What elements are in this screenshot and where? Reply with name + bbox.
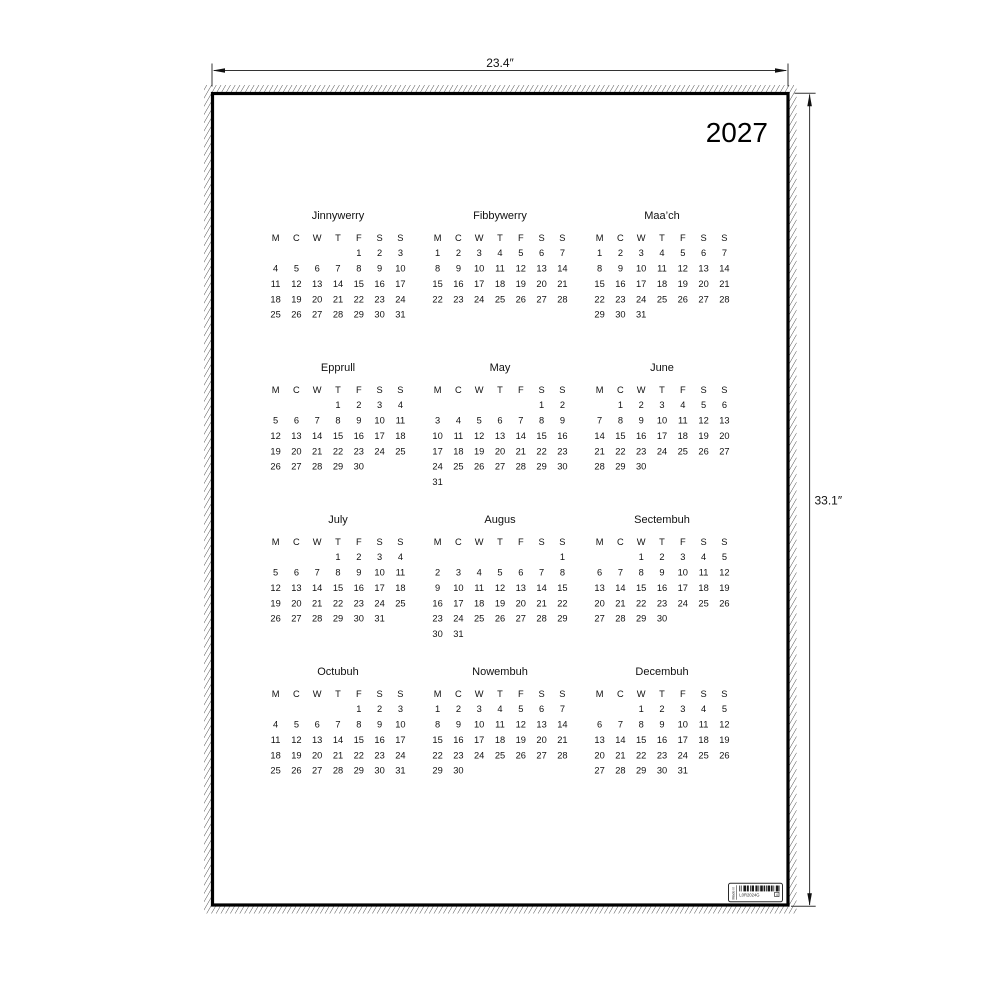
- svg-text:24: 24: [678, 598, 688, 608]
- svg-text:22: 22: [354, 750, 364, 760]
- svg-text:4: 4: [398, 552, 403, 562]
- svg-text:8: 8: [356, 720, 361, 730]
- svg-text:T: T: [335, 537, 341, 547]
- svg-text:4: 4: [477, 568, 482, 578]
- svg-text:16: 16: [615, 279, 625, 289]
- svg-text:2: 2: [356, 400, 361, 410]
- svg-text:22: 22: [536, 446, 546, 456]
- svg-text:Maa’ch: Maa’ch: [644, 210, 679, 222]
- svg-text:30: 30: [636, 462, 646, 472]
- svg-text:6: 6: [518, 568, 523, 578]
- svg-text:27: 27: [698, 294, 708, 304]
- svg-text:17: 17: [657, 431, 667, 441]
- svg-text:S: S: [700, 233, 706, 243]
- svg-text:28: 28: [312, 462, 322, 472]
- svg-text:15: 15: [333, 583, 343, 593]
- svg-text:S: S: [397, 233, 403, 243]
- svg-text:31: 31: [395, 310, 405, 320]
- svg-text:18: 18: [395, 583, 405, 593]
- svg-text:15: 15: [636, 735, 646, 745]
- svg-text:M: M: [434, 689, 442, 699]
- svg-text:Sectembuh: Sectembuh: [634, 514, 690, 526]
- svg-text:22: 22: [557, 598, 567, 608]
- svg-text:3: 3: [659, 400, 664, 410]
- svg-text:15: 15: [615, 431, 625, 441]
- svg-text:2: 2: [618, 248, 623, 258]
- svg-text:14: 14: [594, 431, 604, 441]
- svg-text:27: 27: [495, 462, 505, 472]
- svg-text:30: 30: [557, 462, 567, 472]
- svg-text:T: T: [335, 233, 341, 243]
- svg-text:12: 12: [698, 416, 708, 426]
- svg-text:S: S: [559, 689, 565, 699]
- svg-text:19: 19: [719, 735, 729, 745]
- svg-text:6: 6: [294, 568, 299, 578]
- svg-text:F: F: [680, 385, 686, 395]
- svg-text:10: 10: [374, 568, 384, 578]
- svg-text:F: F: [680, 233, 686, 243]
- svg-text:16: 16: [657, 583, 667, 593]
- svg-text:T: T: [659, 689, 665, 699]
- svg-text:16: 16: [453, 735, 463, 745]
- svg-text:14: 14: [312, 431, 322, 441]
- svg-text:29: 29: [354, 310, 364, 320]
- svg-text:21: 21: [719, 279, 729, 289]
- svg-text:7: 7: [618, 568, 623, 578]
- svg-text:C: C: [293, 689, 300, 699]
- svg-text:26: 26: [516, 750, 526, 760]
- svg-text:13: 13: [312, 735, 322, 745]
- svg-text:Augus: Augus: [484, 514, 516, 526]
- svg-text:2: 2: [377, 704, 382, 714]
- svg-text:21: 21: [615, 750, 625, 760]
- svg-text:20: 20: [312, 294, 322, 304]
- svg-text:S: S: [397, 689, 403, 699]
- svg-text:23: 23: [636, 446, 646, 456]
- svg-text:T: T: [497, 537, 503, 547]
- svg-text:9: 9: [435, 583, 440, 593]
- svg-text:27: 27: [516, 614, 526, 624]
- svg-text:14: 14: [615, 583, 625, 593]
- svg-text:C: C: [455, 385, 462, 395]
- svg-text:1: 1: [356, 248, 361, 258]
- svg-text:M: M: [434, 233, 442, 243]
- svg-text:23: 23: [432, 614, 442, 624]
- svg-text:22: 22: [636, 750, 646, 760]
- svg-text:W: W: [475, 689, 484, 699]
- svg-text:5: 5: [294, 720, 299, 730]
- svg-text:6: 6: [597, 568, 602, 578]
- svg-text:17: 17: [474, 279, 484, 289]
- svg-text:3: 3: [639, 248, 644, 258]
- svg-text:31: 31: [374, 614, 384, 624]
- svg-text:5: 5: [701, 400, 706, 410]
- svg-text:12: 12: [516, 264, 526, 274]
- svg-text:23.4″: 23.4″: [486, 56, 514, 70]
- svg-text:14: 14: [516, 431, 526, 441]
- svg-text:25: 25: [698, 750, 708, 760]
- svg-text:F: F: [356, 537, 362, 547]
- svg-text:7: 7: [518, 416, 523, 426]
- svg-text:19: 19: [516, 279, 526, 289]
- svg-text:S: S: [559, 537, 565, 547]
- svg-text:19: 19: [516, 735, 526, 745]
- svg-text:24: 24: [474, 294, 484, 304]
- svg-text:S: S: [376, 385, 382, 395]
- svg-text:18: 18: [270, 294, 280, 304]
- svg-text:25: 25: [270, 766, 280, 776]
- svg-text:8: 8: [435, 264, 440, 274]
- svg-text:5: 5: [273, 568, 278, 578]
- svg-text:28: 28: [615, 614, 625, 624]
- svg-text:10: 10: [453, 583, 463, 593]
- svg-text:9: 9: [456, 720, 461, 730]
- svg-text:16: 16: [432, 598, 442, 608]
- svg-text:M: M: [596, 537, 604, 547]
- svg-text:Nowembuh: Nowembuh: [472, 666, 528, 678]
- svg-text:9: 9: [639, 416, 644, 426]
- svg-text:1: 1: [639, 552, 644, 562]
- svg-text:S: S: [721, 537, 727, 547]
- svg-text:28: 28: [516, 462, 526, 472]
- svg-text:M: M: [272, 233, 280, 243]
- svg-text:4: 4: [497, 704, 502, 714]
- svg-text:29: 29: [432, 766, 442, 776]
- svg-text:S: S: [538, 233, 544, 243]
- svg-text:16: 16: [557, 431, 567, 441]
- svg-text:19: 19: [474, 446, 484, 456]
- svg-text:24: 24: [474, 750, 484, 760]
- svg-text:M: M: [272, 689, 280, 699]
- svg-text:29: 29: [615, 462, 625, 472]
- svg-text:23: 23: [374, 294, 384, 304]
- svg-text:W: W: [637, 385, 646, 395]
- svg-text:26: 26: [495, 614, 505, 624]
- svg-text:F: F: [356, 689, 362, 699]
- svg-text:20: 20: [594, 750, 604, 760]
- svg-text:3: 3: [477, 248, 482, 258]
- svg-text:24: 24: [657, 446, 667, 456]
- svg-text:C: C: [617, 233, 624, 243]
- svg-text:7: 7: [597, 416, 602, 426]
- svg-text:13: 13: [719, 416, 729, 426]
- svg-text:5: 5: [518, 704, 523, 714]
- svg-text:17: 17: [636, 279, 646, 289]
- svg-text:25: 25: [495, 294, 505, 304]
- svg-text:9: 9: [560, 416, 565, 426]
- svg-text:27: 27: [291, 462, 301, 472]
- svg-text:33.1″: 33.1″: [815, 494, 843, 508]
- svg-text:1: 1: [639, 704, 644, 714]
- svg-text:3: 3: [456, 568, 461, 578]
- svg-text:W: W: [313, 385, 322, 395]
- svg-text:28: 28: [594, 462, 604, 472]
- svg-text:S: S: [559, 385, 565, 395]
- svg-text:14: 14: [536, 583, 546, 593]
- svg-text:1: 1: [618, 400, 623, 410]
- svg-text:6: 6: [315, 264, 320, 274]
- svg-text:23: 23: [657, 750, 667, 760]
- svg-text:25: 25: [474, 614, 484, 624]
- svg-text:15: 15: [354, 735, 364, 745]
- svg-text:W: W: [313, 537, 322, 547]
- svg-text:20: 20: [719, 431, 729, 441]
- svg-text:6: 6: [701, 248, 706, 258]
- svg-text:31: 31: [636, 310, 646, 320]
- svg-text:17: 17: [432, 446, 442, 456]
- svg-text:25: 25: [270, 310, 280, 320]
- svg-text:24: 24: [636, 294, 646, 304]
- svg-text:Jinnywerry: Jinnywerry: [312, 210, 365, 222]
- svg-text:16: 16: [374, 279, 384, 289]
- svg-text:7: 7: [722, 248, 727, 258]
- svg-text:Made in: Made in: [731, 887, 735, 900]
- svg-text:2027: 2027: [706, 117, 768, 148]
- svg-text:T: T: [659, 385, 665, 395]
- svg-text:11: 11: [699, 720, 709, 730]
- svg-text:June: June: [650, 362, 674, 374]
- svg-text:24: 24: [453, 614, 463, 624]
- svg-text:C: C: [455, 537, 462, 547]
- svg-text:T: T: [335, 689, 341, 699]
- svg-text:21: 21: [516, 446, 526, 456]
- svg-text:20: 20: [516, 598, 526, 608]
- svg-text:S: S: [538, 385, 544, 395]
- svg-text:10: 10: [395, 264, 405, 274]
- svg-text:1: 1: [597, 248, 602, 258]
- svg-text:8: 8: [335, 416, 340, 426]
- svg-text:23: 23: [557, 446, 567, 456]
- svg-text:F: F: [518, 233, 524, 243]
- svg-text:25: 25: [678, 446, 688, 456]
- svg-text:1: 1: [335, 552, 340, 562]
- svg-text:16: 16: [354, 583, 364, 593]
- svg-text:20: 20: [291, 598, 301, 608]
- svg-text:T: T: [659, 537, 665, 547]
- svg-text:25: 25: [657, 294, 667, 304]
- svg-text:W: W: [313, 689, 322, 699]
- svg-text:W: W: [637, 233, 646, 243]
- svg-text:6: 6: [539, 704, 544, 714]
- svg-text:15: 15: [594, 279, 604, 289]
- svg-text:28: 28: [557, 750, 567, 760]
- svg-text:1: 1: [435, 248, 440, 258]
- svg-text:9: 9: [356, 416, 361, 426]
- svg-text:May: May: [490, 362, 511, 374]
- svg-text:23: 23: [453, 750, 463, 760]
- svg-text:26: 26: [719, 598, 729, 608]
- svg-text:27: 27: [594, 614, 604, 624]
- svg-text:24: 24: [432, 462, 442, 472]
- svg-text:29: 29: [636, 614, 646, 624]
- svg-text:8: 8: [356, 264, 361, 274]
- svg-text:19: 19: [270, 598, 280, 608]
- svg-text:18: 18: [678, 431, 688, 441]
- svg-text:8: 8: [539, 416, 544, 426]
- svg-text:M: M: [434, 537, 442, 547]
- svg-text:13: 13: [495, 431, 505, 441]
- svg-text:12: 12: [270, 431, 280, 441]
- svg-text:1: 1: [356, 704, 361, 714]
- svg-text:22: 22: [333, 598, 343, 608]
- svg-text:C: C: [617, 385, 624, 395]
- svg-text:19: 19: [291, 750, 301, 760]
- svg-text:23: 23: [453, 294, 463, 304]
- svg-text:17: 17: [374, 431, 384, 441]
- svg-text:2: 2: [560, 400, 565, 410]
- svg-text:22: 22: [333, 446, 343, 456]
- svg-text:5: 5: [518, 248, 523, 258]
- svg-text:21: 21: [557, 735, 567, 745]
- svg-text:3: 3: [398, 704, 403, 714]
- svg-text:17: 17: [678, 735, 688, 745]
- svg-text:F: F: [518, 385, 524, 395]
- svg-text:28: 28: [557, 294, 567, 304]
- svg-text:18: 18: [698, 735, 708, 745]
- svg-text:17: 17: [395, 735, 405, 745]
- svg-text:6: 6: [597, 720, 602, 730]
- svg-text:1: 1: [560, 552, 565, 562]
- svg-text:F: F: [680, 689, 686, 699]
- svg-text:W: W: [475, 537, 484, 547]
- svg-text:4: 4: [497, 248, 502, 258]
- svg-text:21: 21: [312, 446, 322, 456]
- svg-text:3: 3: [680, 704, 685, 714]
- svg-text:13: 13: [291, 431, 301, 441]
- svg-text:29: 29: [536, 462, 546, 472]
- svg-text:30: 30: [453, 766, 463, 776]
- svg-text:M: M: [434, 385, 442, 395]
- svg-text:11: 11: [474, 583, 484, 593]
- svg-text:21: 21: [333, 750, 343, 760]
- svg-text:4: 4: [680, 400, 685, 410]
- svg-text:21: 21: [333, 294, 343, 304]
- svg-text:28: 28: [536, 614, 546, 624]
- svg-text:14: 14: [615, 735, 625, 745]
- svg-text:2: 2: [456, 248, 461, 258]
- svg-text:29: 29: [557, 614, 567, 624]
- svg-text:19: 19: [495, 598, 505, 608]
- svg-text:25: 25: [698, 598, 708, 608]
- svg-text:M: M: [596, 233, 604, 243]
- svg-text:F: F: [680, 537, 686, 547]
- svg-text:19: 19: [698, 431, 708, 441]
- svg-text:26: 26: [719, 750, 729, 760]
- svg-text:T: T: [659, 233, 665, 243]
- svg-text:W: W: [637, 537, 646, 547]
- svg-text:23: 23: [657, 598, 667, 608]
- svg-text:July: July: [328, 514, 348, 526]
- svg-text:22: 22: [615, 446, 625, 456]
- svg-text:14: 14: [557, 264, 567, 274]
- svg-text:11: 11: [495, 720, 505, 730]
- svg-text:30: 30: [374, 310, 384, 320]
- svg-text:23: 23: [615, 294, 625, 304]
- svg-text:11: 11: [657, 264, 667, 274]
- svg-text:S: S: [376, 689, 382, 699]
- svg-text:5: 5: [722, 552, 727, 562]
- svg-text:7: 7: [315, 416, 320, 426]
- svg-text:S: S: [700, 385, 706, 395]
- svg-text:30: 30: [432, 629, 442, 639]
- svg-text:8: 8: [639, 568, 644, 578]
- svg-text:30: 30: [657, 766, 667, 776]
- svg-text:29: 29: [636, 766, 646, 776]
- svg-text:22: 22: [636, 598, 646, 608]
- svg-text:30: 30: [354, 462, 364, 472]
- svg-text:27: 27: [536, 294, 546, 304]
- svg-text:T: T: [497, 233, 503, 243]
- svg-text:13: 13: [536, 264, 546, 274]
- svg-text:22: 22: [432, 750, 442, 760]
- svg-text:C: C: [617, 689, 624, 699]
- svg-text:F: F: [518, 689, 524, 699]
- svg-text:18: 18: [395, 431, 405, 441]
- svg-text:F: F: [356, 385, 362, 395]
- svg-text:S: S: [721, 385, 727, 395]
- svg-text:28: 28: [719, 294, 729, 304]
- svg-text:17: 17: [453, 598, 463, 608]
- svg-text:21: 21: [312, 598, 322, 608]
- svg-text:10: 10: [678, 568, 688, 578]
- svg-text:3: 3: [435, 416, 440, 426]
- svg-text:5: 5: [477, 416, 482, 426]
- svg-text:9: 9: [618, 264, 623, 274]
- svg-text:15: 15: [432, 279, 442, 289]
- svg-text:8: 8: [618, 416, 623, 426]
- svg-text:24: 24: [395, 750, 405, 760]
- svg-text:2: 2: [659, 552, 664, 562]
- svg-text:S: S: [538, 537, 544, 547]
- svg-text:11: 11: [271, 735, 281, 745]
- svg-text:26: 26: [698, 446, 708, 456]
- svg-text:30: 30: [657, 614, 667, 624]
- svg-text:C: C: [293, 385, 300, 395]
- svg-text:19: 19: [270, 446, 280, 456]
- svg-text:4: 4: [776, 893, 778, 897]
- svg-text:20: 20: [698, 279, 708, 289]
- svg-text:S: S: [538, 689, 544, 699]
- svg-text:11: 11: [454, 431, 464, 441]
- svg-text:W: W: [475, 233, 484, 243]
- svg-text:C: C: [617, 537, 624, 547]
- svg-text:F: F: [518, 537, 524, 547]
- svg-text:6: 6: [294, 416, 299, 426]
- svg-text:15: 15: [333, 431, 343, 441]
- svg-text:W: W: [637, 689, 646, 699]
- svg-text:S: S: [376, 233, 382, 243]
- svg-text:25: 25: [453, 462, 463, 472]
- svg-text:19: 19: [719, 583, 729, 593]
- svg-text:30: 30: [374, 766, 384, 776]
- svg-text:20: 20: [594, 598, 604, 608]
- svg-text:M: M: [272, 537, 280, 547]
- svg-text:4: 4: [273, 720, 278, 730]
- svg-text:11: 11: [678, 416, 688, 426]
- svg-text:26: 26: [516, 294, 526, 304]
- svg-text:4: 4: [273, 264, 278, 274]
- svg-text:7: 7: [560, 248, 565, 258]
- svg-text:26: 26: [291, 766, 301, 776]
- svg-text:5: 5: [273, 416, 278, 426]
- svg-text:2: 2: [435, 568, 440, 578]
- svg-text:6: 6: [539, 248, 544, 258]
- svg-text:11: 11: [396, 568, 406, 578]
- svg-text:23: 23: [354, 446, 364, 456]
- svg-text:10: 10: [636, 264, 646, 274]
- svg-text:9: 9: [377, 720, 382, 730]
- svg-text:8: 8: [639, 720, 644, 730]
